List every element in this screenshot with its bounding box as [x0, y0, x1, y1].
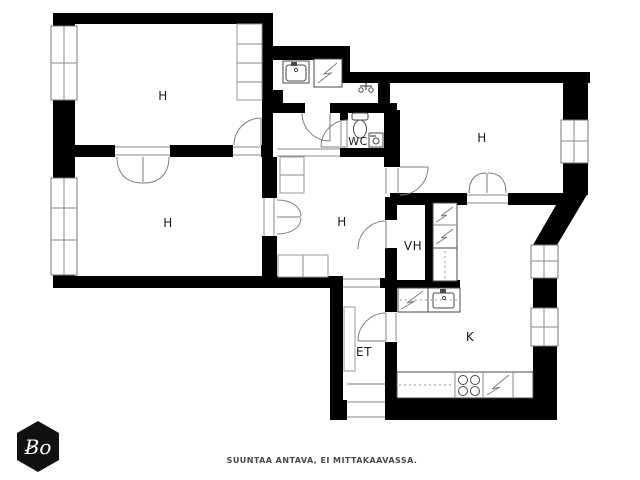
front-door-opening — [347, 384, 385, 417]
window-icon — [561, 120, 588, 163]
wardrobe-icon — [280, 157, 304, 193]
dishwasher-icon — [398, 288, 428, 312]
label-room-middle: H — [337, 215, 347, 229]
bathroom-sink-icon — [283, 61, 309, 83]
kitchen-fixtures — [397, 203, 533, 398]
label-kitchen: K — [466, 330, 475, 344]
wardrobe-icon — [344, 307, 355, 371]
label-room-right: H — [477, 131, 487, 145]
agency-logo: Bo — [14, 420, 62, 474]
wall-opening — [343, 279, 380, 287]
wardrobe-icon — [237, 24, 262, 100]
window-icon — [531, 308, 558, 346]
wardrobe-icon — [278, 255, 328, 277]
washing-machine-icon — [314, 59, 342, 87]
door-arc-icon — [386, 167, 428, 195]
label-et: ET — [356, 345, 372, 359]
door-arc-icon — [321, 120, 348, 147]
floor-plan-drawing: H H H H WC VH ET K — [0, 0, 640, 480]
shower-tap-icon — [359, 83, 373, 92]
label-room-bottom-left: H — [163, 216, 173, 230]
window-icon — [531, 245, 558, 278]
label-vh: VH — [404, 239, 422, 253]
door-arc-icon — [358, 313, 396, 341]
door-arc-icon — [302, 113, 330, 141]
double-door-icon — [264, 198, 301, 236]
window-icon — [51, 26, 77, 100]
door-arc-icon — [233, 118, 261, 155]
label-wc: WC — [348, 135, 368, 148]
double-door-icon — [115, 147, 170, 184]
fridge-freezer-icon — [433, 203, 457, 281]
disclaimer-text: SUUNTAA ANTAVA, EI MITTAKAAVASSA. — [0, 456, 640, 465]
wall-opening — [277, 149, 340, 156]
label-room-top-left: H — [158, 89, 168, 103]
door-arc-icon — [358, 221, 386, 249]
floor-plan-page: H H H H WC VH ET K Bo SUUNTAA ANTAVA, EI… — [0, 0, 640, 480]
wc-basin-icon — [369, 133, 383, 147]
window-icon — [51, 178, 77, 275]
double-door-icon — [467, 173, 508, 203]
